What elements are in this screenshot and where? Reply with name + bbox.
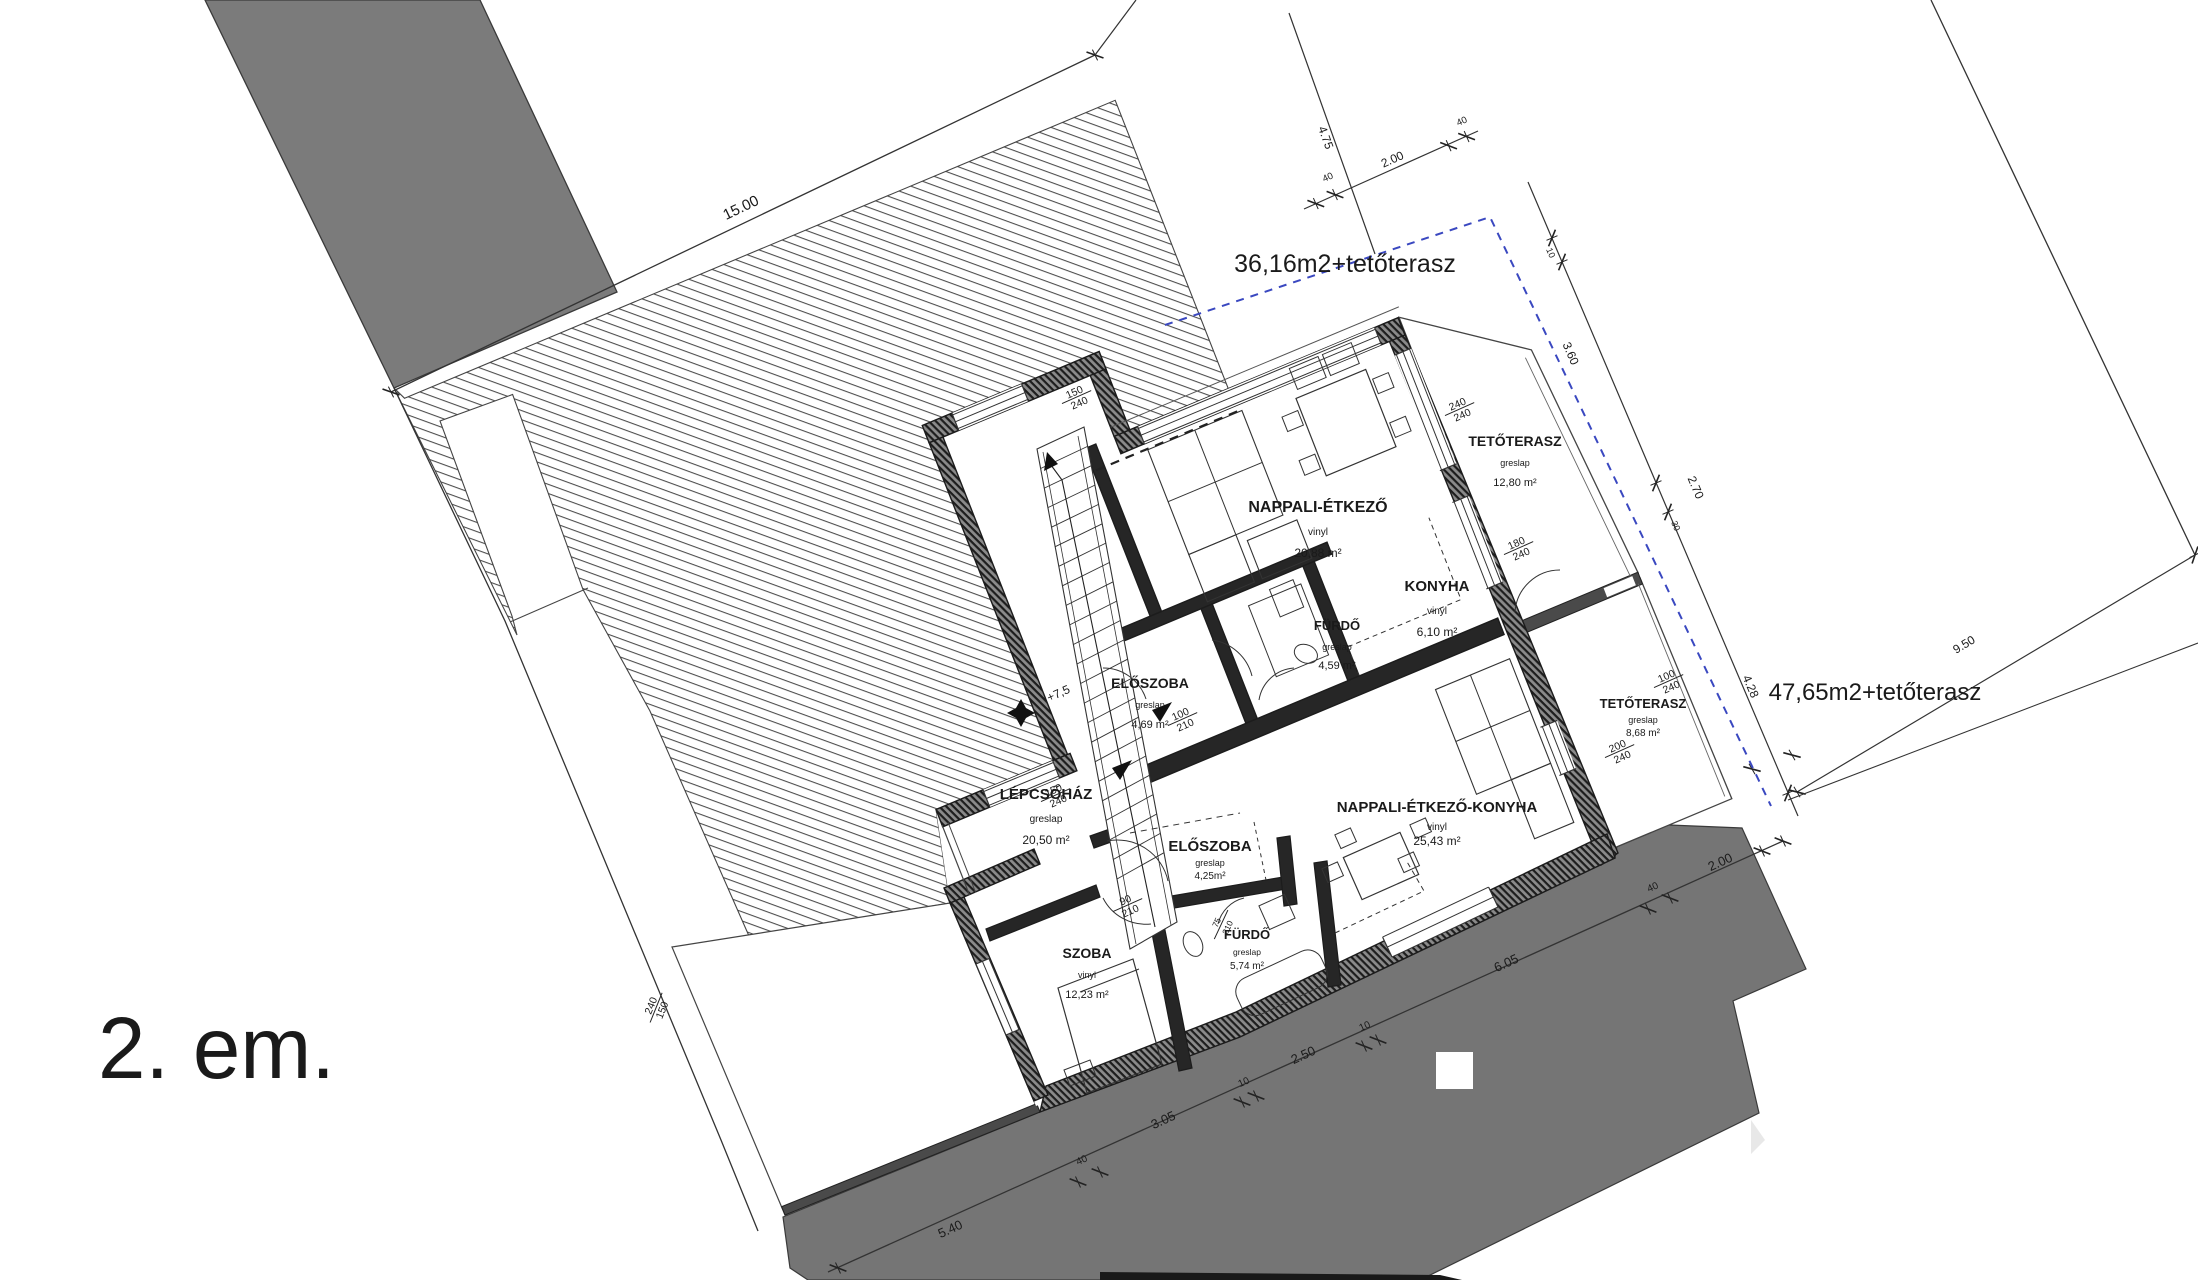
- svg-text:12,80 m²: 12,80 m²: [1493, 477, 1537, 489]
- svg-text:TETŐTERASZ: TETŐTERASZ: [1468, 432, 1562, 449]
- svg-text:ELŐSZOBA: ELŐSZOBA: [1111, 674, 1189, 691]
- svg-text:greslap: greslap: [1322, 642, 1352, 652]
- svg-text:36,16m2+tetőterasz: 36,16m2+tetőterasz: [1234, 250, 1456, 278]
- svg-text:8,68 m²: 8,68 m²: [1626, 728, 1661, 739]
- svg-text:NAPPALI-ÉTKEZŐ-KONYHA: NAPPALI-ÉTKEZŐ-KONYHA: [1337, 798, 1538, 816]
- svg-text:SZOBA: SZOBA: [1063, 945, 1112, 961]
- svg-text:4,25m²: 4,25m²: [1194, 871, 1226, 882]
- svg-text:12,23 m²: 12,23 m²: [1065, 989, 1109, 1001]
- svg-text:vinyl: vinyl: [1427, 822, 1447, 833]
- svg-text:greslap: greslap: [1628, 715, 1658, 725]
- svg-text:vinyl: vinyl: [1427, 606, 1447, 617]
- svg-text:5,74 m²: 5,74 m²: [1230, 961, 1265, 972]
- svg-text:20,50 m²: 20,50 m²: [1022, 833, 1069, 847]
- svg-text:FÜRDŐ: FÜRDŐ: [1314, 618, 1360, 633]
- svg-text:6,10 m²: 6,10 m²: [1417, 625, 1458, 639]
- svg-text:20,88 m²: 20,88 m²: [1294, 546, 1341, 560]
- svg-text:TETŐTERASZ: TETŐTERASZ: [1600, 696, 1687, 711]
- svg-text:greslap: greslap: [1030, 814, 1063, 825]
- svg-text:greslap: greslap: [1195, 858, 1225, 868]
- svg-text:greslap: greslap: [1233, 947, 1261, 957]
- svg-text:2. em.: 2. em.: [98, 1000, 335, 1097]
- svg-text:vinyl: vinyl: [1308, 527, 1328, 538]
- svg-text:ELŐSZOBA: ELŐSZOBA: [1168, 837, 1252, 855]
- svg-text:25,43 m²: 25,43 m²: [1413, 834, 1460, 848]
- svg-text:4,69 m²: 4,69 m²: [1131, 719, 1169, 731]
- svg-text:greslap: greslap: [1500, 458, 1530, 468]
- svg-text:KONYHA: KONYHA: [1404, 578, 1469, 595]
- svg-text:4,59 m²: 4,59 m²: [1318, 660, 1356, 672]
- svg-text:vinyl: vinyl: [1078, 970, 1096, 980]
- svg-text:47,65m2+tetőterasz: 47,65m2+tetőterasz: [1769, 679, 1982, 706]
- svg-text:NAPPALI-ÉTKEZŐ: NAPPALI-ÉTKEZŐ: [1248, 497, 1387, 516]
